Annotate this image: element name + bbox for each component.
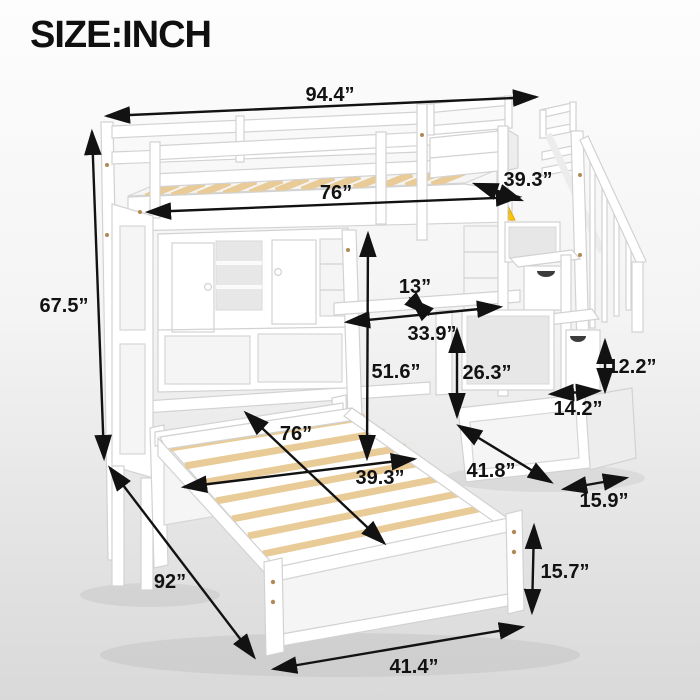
dim-shelf-depth-label: 13” bbox=[399, 276, 431, 298]
dim-overall-width: 94.4” bbox=[107, 84, 536, 116]
footboard-right-post bbox=[506, 510, 524, 614]
footboard-left-post bbox=[264, 558, 284, 656]
loft-guardrail-left-stile bbox=[150, 142, 160, 218]
dim-loft-clearance-height-arrow bbox=[367, 234, 368, 458]
dim-lower-bed-width-label: 39.3” bbox=[356, 467, 405, 489]
wardrobe-side-inset-bottom bbox=[120, 344, 145, 454]
dim-stair-storage-height-label: 26.3” bbox=[463, 362, 512, 384]
dim-stair-step-depth-arrow bbox=[551, 391, 599, 394]
wardrobe-side-inset-top bbox=[120, 226, 145, 330]
product-dimension-diagram: SIZE:INCH bbox=[0, 0, 700, 700]
stair-top-guard bbox=[540, 102, 576, 176]
dim-overall-height: 67.5” bbox=[40, 132, 104, 458]
dim-footboard-width-label: 41.4” bbox=[390, 656, 439, 678]
wardrobe-open-cube bbox=[216, 241, 262, 310]
dim-footboard-height-arrow bbox=[532, 526, 534, 612]
stair-baluster bbox=[590, 158, 595, 328]
wardrobe-right-door-knob[interactable] bbox=[275, 269, 282, 276]
dim-desk-width-label: 33.9” bbox=[408, 323, 457, 345]
loft-right-post bbox=[417, 104, 427, 240]
wardrobe-lower-panel-left[interactable] bbox=[165, 336, 250, 384]
dim-footboard-height-label: 15.7” bbox=[541, 561, 590, 583]
dim-staircase-width-label: 15.9” bbox=[580, 490, 629, 512]
dim-staircase-length-label: 41.8” bbox=[467, 460, 516, 482]
stair-baluster bbox=[614, 210, 619, 316]
dim-loft-clearance-height-label: 51.6” bbox=[372, 361, 421, 383]
dim-lower-bed-slat-length-label: 76” bbox=[280, 423, 312, 445]
dim-upper-bed-length-label: 76” bbox=[320, 182, 352, 204]
dim-upper-bed-width-label: 39.3” bbox=[504, 169, 553, 191]
stair-end-post bbox=[632, 262, 643, 332]
wardrobe-right-door[interactable] bbox=[272, 240, 316, 324]
wardrobe-lower-panel-right[interactable] bbox=[258, 334, 342, 382]
bed-dimension-illustration: ! bbox=[0, 0, 700, 700]
dim-stair-drawer-height-label: 12.2” bbox=[608, 356, 657, 378]
dim-footboard-height: 15.7” bbox=[532, 526, 589, 612]
dim-stair-step-depth-label: 14.2” bbox=[554, 398, 603, 420]
wardrobe-back-leg bbox=[141, 478, 153, 590]
dim-stair-drawer-height: 12.2” bbox=[605, 341, 656, 391]
loft-guardrail-mid-stile bbox=[376, 132, 386, 224]
stair-baluster bbox=[602, 184, 607, 322]
dim-lower-bed-length-label: 92” bbox=[154, 571, 186, 593]
wardrobe-left-door-knob[interactable] bbox=[205, 284, 212, 291]
dim-overall-height-label: 67.5” bbox=[40, 295, 89, 317]
landing-shelf-side bbox=[508, 130, 518, 170]
dim-overall-width-label: 94.4” bbox=[306, 84, 355, 106]
